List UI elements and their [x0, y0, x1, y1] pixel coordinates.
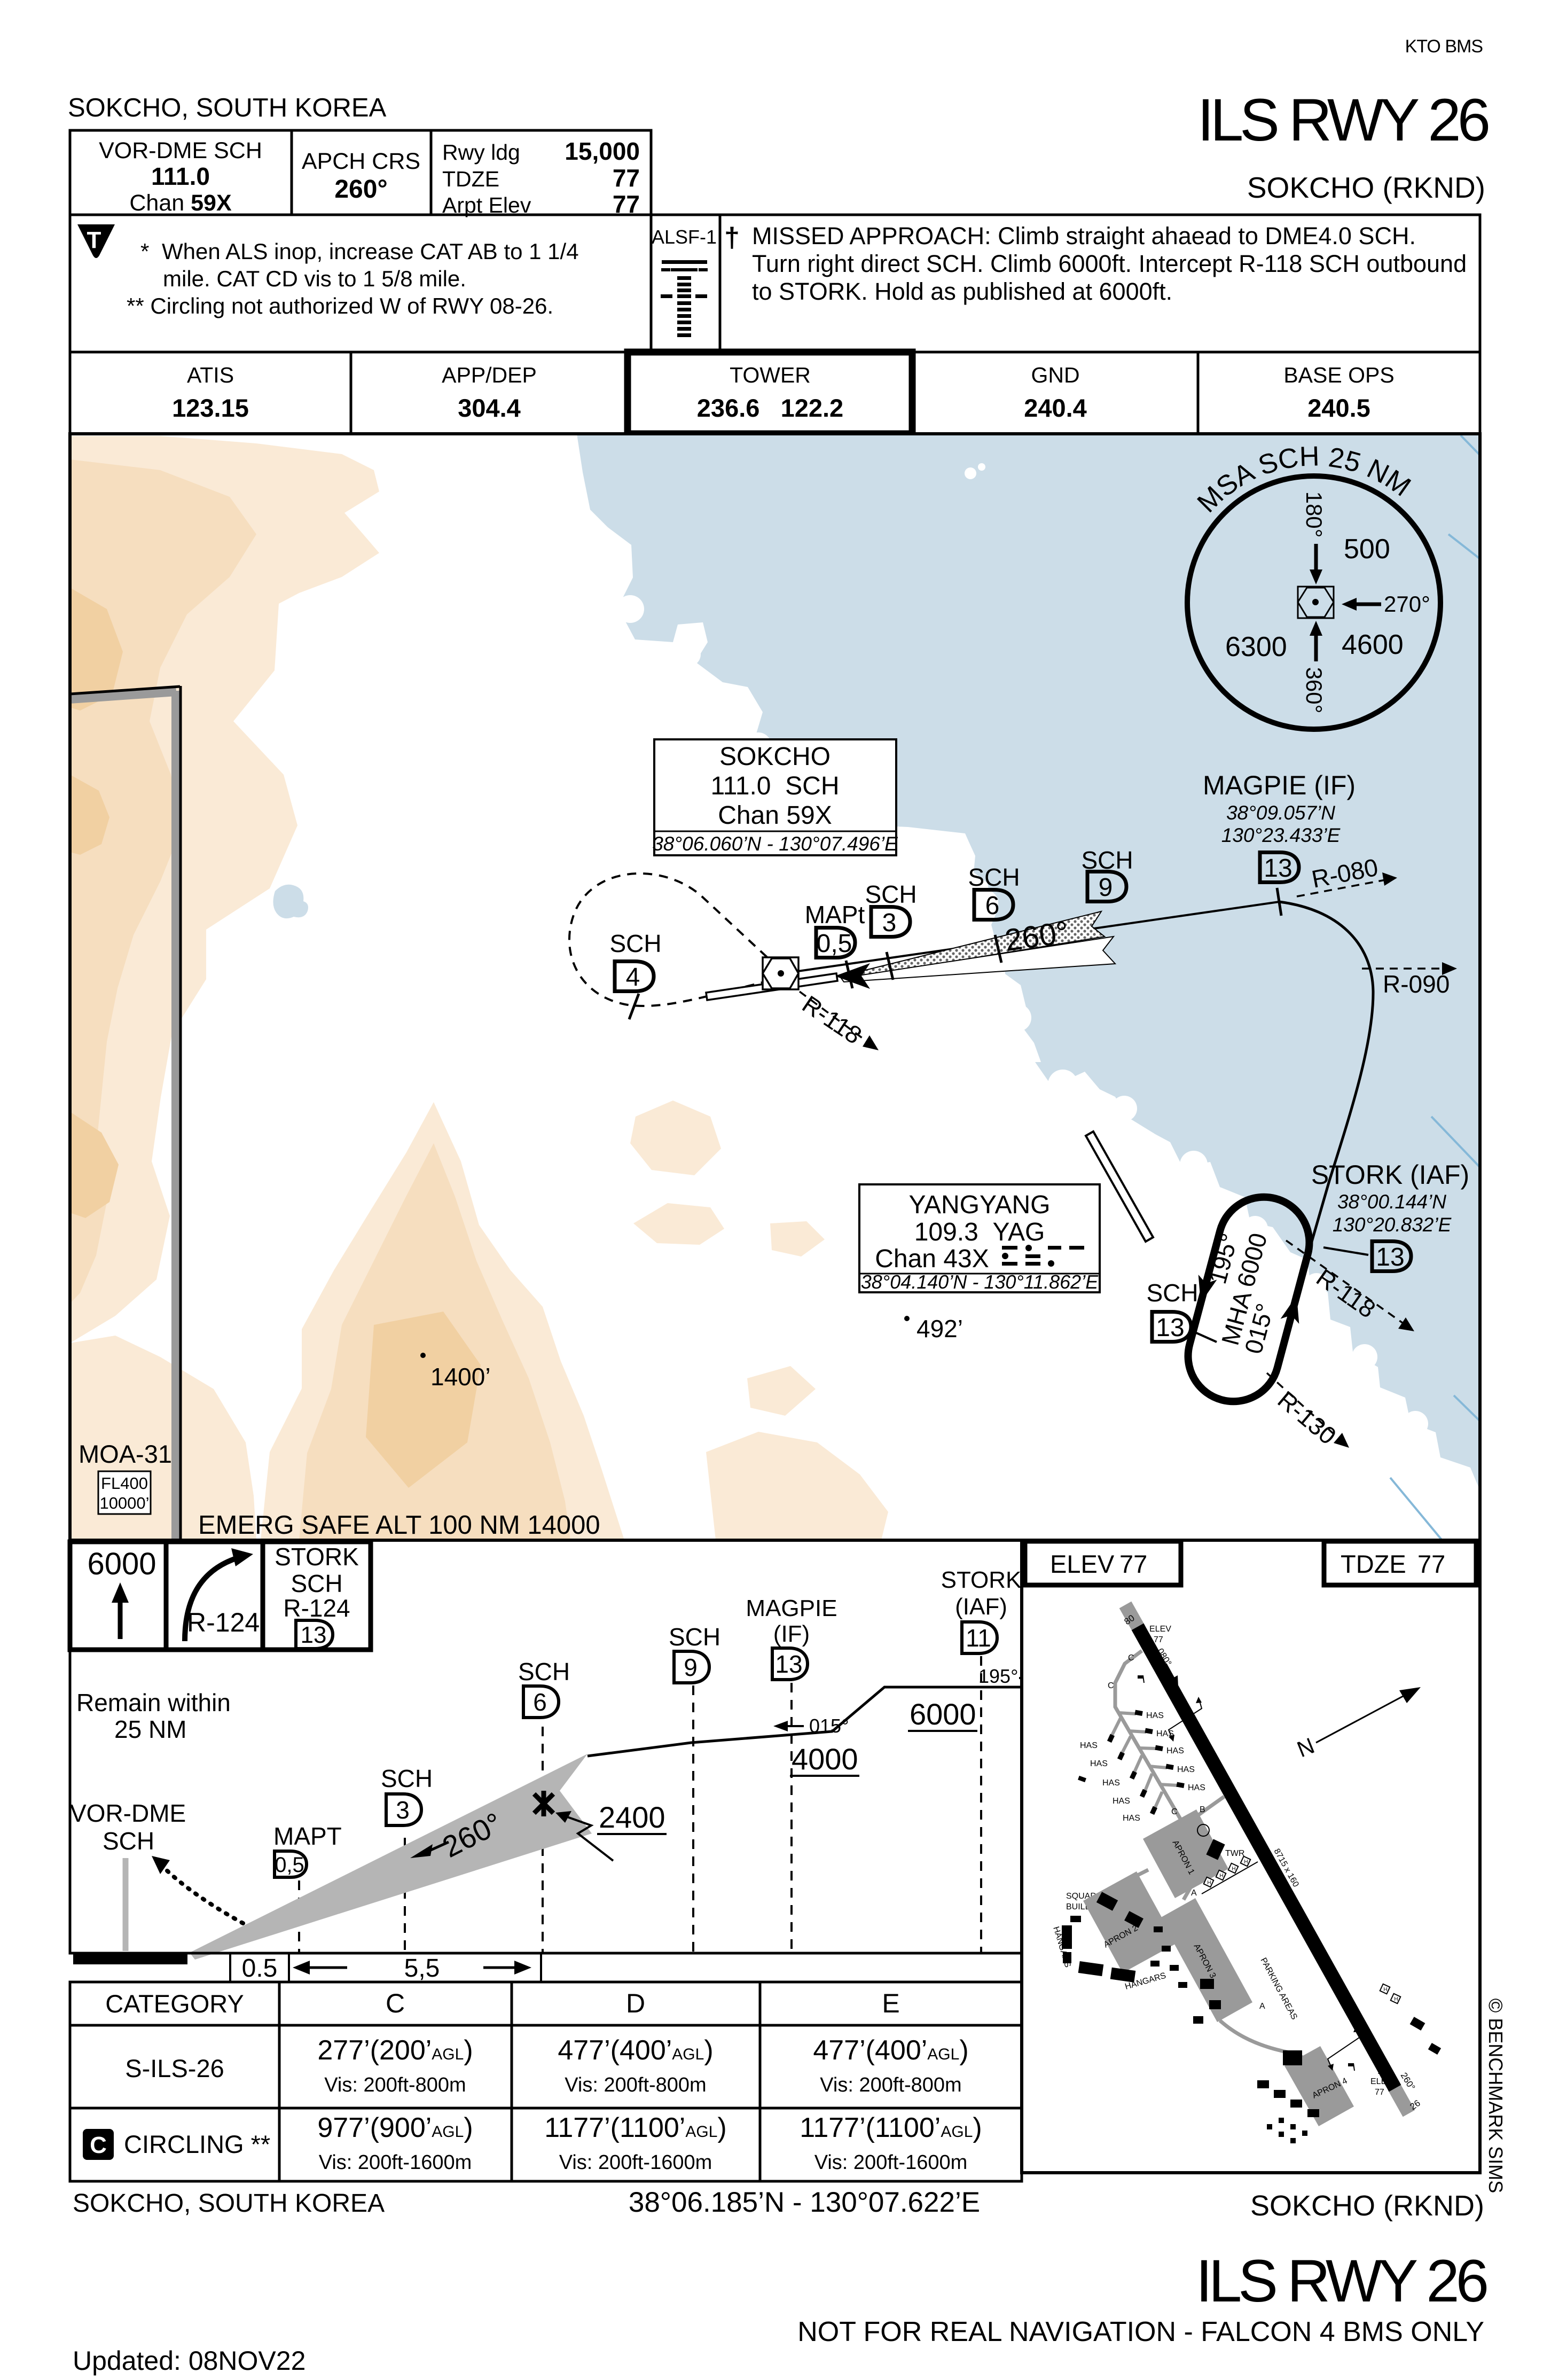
- svg-text:SCH: SCH: [291, 1570, 342, 1597]
- svg-text:H: H: [1232, 1866, 1235, 1872]
- svg-text:*: *: [140, 239, 149, 264]
- svg-text:H: H: [1394, 1996, 1398, 2002]
- svg-text:R-130: R-130: [1273, 1386, 1342, 1450]
- svg-text:NOT FOR REAL NAVIGATION - FALC: NOT FOR REAL NAVIGATION - FALCON 4 BMS O…: [797, 2316, 1484, 2347]
- svg-text:360°: 360°: [1302, 667, 1327, 714]
- svg-text:Chan 43X: Chan 43X: [875, 1245, 989, 1273]
- svg-text:500: 500: [1344, 534, 1390, 565]
- svg-text:SCH: SCH: [669, 1623, 720, 1651]
- svg-text:BASE OPS: BASE OPS: [1283, 363, 1394, 387]
- svg-text:(IF): (IF): [773, 1621, 810, 1647]
- svg-text:** Circling not authorized W o: ** Circling not authorized W of RWY 08-2…: [127, 293, 553, 318]
- svg-text:Vis: 200ft-800m: Vis: 200ft-800m: [324, 2074, 466, 2096]
- svg-text:77: 77: [1375, 2088, 1384, 2097]
- svg-text:111.0 SCH: 111.0 SCH: [710, 772, 839, 800]
- svg-text:Vis: 200ft-1600m: Vis: 200ft-1600m: [559, 2151, 712, 2174]
- svg-text:HAS: HAS: [1123, 1814, 1140, 1823]
- svg-text:ILS RWY 26: ILS RWY 26: [1197, 87, 1489, 153]
- svg-text:YANGYANG: YANGYANG: [909, 1191, 1051, 1219]
- svg-text:HAS: HAS: [1080, 1741, 1098, 1750]
- svg-text:Vis: 200ft-800m: Vis: 200ft-800m: [565, 2074, 706, 2096]
- svg-text:6000: 6000: [910, 1697, 976, 1731]
- svg-text:236.6 122.2: 236.6 122.2: [697, 394, 843, 422]
- svg-text:HAS: HAS: [1177, 1765, 1195, 1774]
- svg-text:T: T: [87, 227, 101, 253]
- svg-text:C: C: [386, 1988, 405, 2018]
- svg-text:KTO BMS: KTO BMS: [1405, 36, 1483, 57]
- svg-text:H: H: [1244, 1859, 1248, 1865]
- svg-text:SCH: SCH: [968, 863, 1020, 891]
- svg-text:MISSED APPROACH: Climb straigh: MISSED APPROACH: Climb straight ahaead t…: [752, 222, 1416, 249]
- svg-text:H: H: [1383, 1987, 1387, 1993]
- svg-text:10000’: 10000’: [99, 1494, 149, 1512]
- svg-text:†: †: [724, 222, 740, 253]
- svg-text:38°04.140’N - 130°11.862’E: 38°04.140’N - 130°11.862’E: [861, 1271, 1099, 1293]
- svg-text:77: 77: [1154, 1635, 1163, 1644]
- svg-text:R-090: R-090: [1383, 970, 1450, 998]
- svg-text:1400’: 1400’: [430, 1363, 491, 1391]
- svg-text:FL400: FL400: [101, 1474, 148, 1493]
- svg-text:5,5: 5,5: [404, 1954, 440, 1983]
- svg-text:APP/DEP: APP/DEP: [442, 363, 537, 387]
- svg-text:ALSF-1: ALSF-1: [652, 226, 717, 248]
- svg-text:15,000: 15,000: [565, 137, 640, 165]
- svg-text:195°: 195°: [978, 1665, 1018, 1687]
- svg-text:CATEGORY: CATEGORY: [105, 1989, 244, 2018]
- svg-text:MAPT: MAPT: [273, 1822, 342, 1850]
- svg-text:25 NM: 25 NM: [114, 1715, 186, 1743]
- svg-text:VOR-DME: VOR-DME: [70, 1799, 186, 1827]
- svg-text:492’: 492’: [916, 1315, 963, 1343]
- svg-text:R-124: R-124: [187, 1608, 260, 1637]
- svg-text:240.5: 240.5: [1307, 394, 1370, 422]
- svg-text:MAGPIE: MAGPIE: [746, 1595, 837, 1621]
- svg-text:S-ILS-26: S-ILS-26: [125, 2054, 224, 2082]
- svg-text:Vis: 200ft-800m: Vis: 200ft-800m: [820, 2074, 961, 2096]
- svg-text:477’(400’AGL): 477’(400’AGL): [558, 2035, 713, 2066]
- svg-text:C: C: [1128, 1653, 1134, 1663]
- svg-text:109.3 YAG: 109.3 YAG: [914, 1218, 1045, 1246]
- svg-text:ATIS: ATIS: [187, 363, 234, 387]
- svg-text:TWR: TWR: [1225, 1849, 1244, 1858]
- svg-text:HAS: HAS: [1090, 1759, 1108, 1768]
- svg-text:38°00.144’N: 38°00.144’N: [1337, 1191, 1446, 1213]
- svg-text:6000: 6000: [87, 1547, 156, 1581]
- svg-text:TDZE: TDZE: [1341, 1550, 1406, 1578]
- svg-text:SCH: SCH: [865, 880, 916, 908]
- svg-text:1177’(1100’AGL): 1177’(1100’AGL): [544, 2112, 726, 2143]
- svg-text:304.4: 304.4: [458, 394, 521, 422]
- svg-text:Vis: 200ft-1600m: Vis: 200ft-1600m: [814, 2151, 968, 2174]
- svg-text:Chan 59X: Chan 59X: [129, 190, 232, 216]
- svg-text:to STORK. Hold as published at: to STORK. Hold as published at 6000ft.: [752, 278, 1172, 305]
- svg-text:977’(900’AGL): 977’(900’AGL): [317, 2112, 473, 2143]
- svg-text:13: 13: [1264, 854, 1292, 883]
- svg-text:SCH: SCH: [381, 1765, 433, 1792]
- svg-text:R-124: R-124: [283, 1594, 350, 1622]
- svg-text:mile. CAT CD vis to 1 5/8 mile: mile. CAT CD vis to 1 5/8 mile.: [163, 266, 466, 291]
- svg-text:130°23.433’E: 130°23.433’E: [1221, 824, 1341, 846]
- svg-text:SOKCHO (RKND): SOKCHO (RKND): [1247, 171, 1485, 204]
- svg-text:38°06.060’N - 130°07.496’E: 38°06.060’N - 130°07.496’E: [652, 833, 898, 855]
- svg-text:STORK (IAF): STORK (IAF): [1311, 1160, 1469, 1190]
- svg-text:6: 6: [985, 892, 1000, 920]
- svg-text:SOKCHO, SOUTH KOREA: SOKCHO, SOUTH KOREA: [68, 93, 387, 122]
- svg-text:A: A: [1191, 1889, 1197, 1898]
- svg-text:Rwy ldg: Rwy ldg: [442, 140, 520, 165]
- svg-text:9: 9: [684, 1653, 698, 1681]
- svg-text:ELEV: ELEV: [1370, 2077, 1392, 2086]
- svg-text:ILS RWY 26: ILS RWY 26: [1196, 2248, 1487, 2314]
- svg-text:(IAF): (IAF): [955, 1594, 1007, 1620]
- svg-text:13: 13: [775, 1650, 802, 1678]
- svg-text:13: 13: [1376, 1243, 1404, 1271]
- svg-text:123.15: 123.15: [172, 394, 249, 422]
- svg-text:Turn right direct SCH. Climb 6: Turn right direct SCH. Climb 6000ft. Int…: [752, 250, 1467, 277]
- svg-text:Vis: 200ft-1600m: Vis: 200ft-1600m: [319, 2151, 472, 2174]
- svg-text:0,5: 0,5: [275, 1853, 304, 1877]
- svg-text:77: 77: [1417, 1550, 1445, 1578]
- svg-text:77: 77: [613, 164, 640, 192]
- svg-text:D: D: [626, 1988, 645, 2018]
- svg-text:MAPt: MAPt: [805, 901, 865, 928]
- svg-text:APCH CRS: APCH CRS: [302, 149, 420, 174]
- svg-text:6: 6: [533, 1688, 547, 1716]
- svg-text:SOKCHO: SOKCHO: [719, 743, 831, 771]
- svg-text:9: 9: [1099, 873, 1113, 902]
- svg-text:6300: 6300: [1225, 631, 1287, 662]
- svg-text:H: H: [1207, 1880, 1211, 1886]
- svg-text:TOWER: TOWER: [730, 363, 811, 387]
- svg-text:© BENCHMARK SIMS: © BENCHMARK SIMS: [1485, 1999, 1507, 2194]
- svg-text:4000: 4000: [792, 1742, 858, 1776]
- svg-text:HAS: HAS: [1166, 1746, 1184, 1755]
- svg-text:38°09.057’N: 38°09.057’N: [1226, 802, 1335, 824]
- svg-text:STORK: STORK: [941, 1567, 1022, 1593]
- svg-text:B: B: [1200, 1805, 1205, 1814]
- svg-text:Chan 59X: Chan 59X: [718, 801, 832, 830]
- svg-text:4600: 4600: [1342, 629, 1404, 660]
- svg-text:Updated: 08NOV22: Updated: 08NOV22: [73, 2346, 305, 2376]
- svg-text:GND: GND: [1031, 363, 1079, 387]
- svg-text:ELEV: ELEV: [1050, 1550, 1115, 1578]
- svg-text:C: C: [1108, 1681, 1114, 1690]
- svg-text:180°: 180°: [1302, 491, 1327, 538]
- svg-text:2400: 2400: [599, 1800, 665, 1834]
- svg-text:13: 13: [1156, 1314, 1184, 1342]
- svg-text:240.4: 240.4: [1024, 394, 1087, 422]
- svg-text:015°: 015°: [809, 1715, 849, 1737]
- svg-text:A: A: [1259, 2002, 1265, 2011]
- svg-text:130°20.832’E: 130°20.832’E: [1333, 1214, 1452, 1236]
- svg-text:MAGPIE (IF): MAGPIE (IF): [1203, 770, 1356, 800]
- svg-text:R-118: R-118: [797, 990, 867, 1049]
- svg-text:VOR-DME SCH: VOR-DME SCH: [99, 138, 262, 163]
- svg-text:4: 4: [626, 963, 640, 992]
- svg-text:Remain within: Remain within: [76, 1689, 231, 1716]
- svg-text:260°: 260°: [334, 175, 387, 204]
- svg-text:HAS: HAS: [1102, 1778, 1120, 1788]
- svg-text:SOKCHO (RKND): SOKCHO (RKND): [1250, 2190, 1484, 2222]
- svg-text:E: E: [882, 1988, 899, 2018]
- svg-text:SOKCHO, SOUTH KOREA: SOKCHO, SOUTH KOREA: [73, 2189, 385, 2218]
- svg-text:MOA-31: MOA-31: [79, 1440, 172, 1468]
- svg-text:CIRCLING **: CIRCLING **: [124, 2130, 270, 2158]
- svg-text:H: H: [1219, 1873, 1223, 1879]
- svg-text:3: 3: [882, 909, 897, 937]
- svg-text:When ALS inop, increase CAT AB: When ALS inop, increase CAT AB to 1 1/4: [162, 239, 579, 264]
- svg-text:SCH: SCH: [103, 1827, 154, 1855]
- svg-text:3: 3: [396, 1796, 410, 1824]
- svg-text:SCH: SCH: [609, 930, 661, 957]
- svg-text:C: C: [1171, 1807, 1178, 1816]
- svg-text:13: 13: [301, 1622, 327, 1648]
- svg-text:1177’(1100’AGL): 1177’(1100’AGL): [800, 2112, 982, 2143]
- svg-text:0.5: 0.5: [242, 1954, 278, 1983]
- svg-text:TDZE: TDZE: [442, 167, 499, 191]
- svg-text:HAS: HAS: [1146, 1711, 1164, 1720]
- svg-text:SCH: SCH: [1146, 1279, 1198, 1307]
- svg-text:HAS: HAS: [1113, 1797, 1130, 1806]
- svg-text:11: 11: [966, 1624, 991, 1652]
- svg-text:ELEV: ELEV: [1149, 1625, 1171, 1634]
- svg-text:EMERG SAFE ALT 100 NM 14000: EMERG SAFE ALT 100 NM 14000: [198, 1511, 600, 1540]
- svg-text:477’(400’AGL): 477’(400’AGL): [813, 2035, 968, 2066]
- svg-text:277’(200’AGL): 277’(200’AGL): [317, 2035, 473, 2066]
- svg-text:38°06.185’N - 130°07.622’E: 38°06.185’N - 130°07.622’E: [629, 2187, 980, 2218]
- svg-text:SCH: SCH: [518, 1658, 570, 1685]
- svg-text:C: C: [90, 2132, 107, 2158]
- svg-text:111.0: 111.0: [151, 162, 210, 190]
- svg-text:HAS: HAS: [1188, 1783, 1205, 1792]
- svg-text:STORK: STORK: [275, 1543, 359, 1571]
- svg-text:0,5: 0,5: [817, 930, 852, 958]
- svg-text:270°: 270°: [1384, 591, 1430, 617]
- svg-text:77: 77: [1119, 1550, 1147, 1578]
